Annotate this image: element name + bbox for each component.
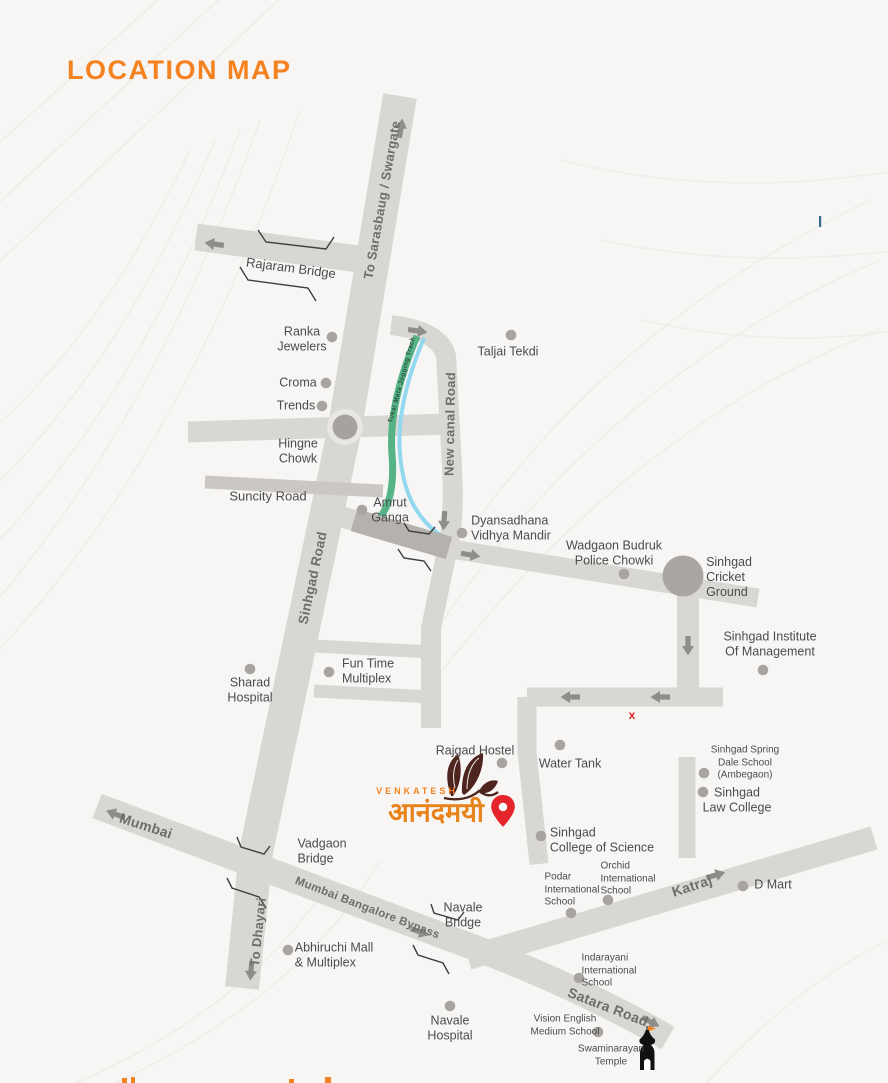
poi-dot [283,945,294,956]
label-fun-time: Fun Time Multiplex [342,656,394,686]
poi-dot [536,831,547,842]
poi-dot [445,1001,456,1012]
poi-dot [357,505,368,516]
poi-dot [758,665,769,676]
poi-dot [324,667,335,678]
logo-project-name: आनंदमयी [388,793,484,830]
label-taljai-tekdi: Taljai Tekdi [478,345,539,360]
cutoff-orange-text [122,1077,331,1083]
label-abhiruchi-mall: Abhiruchi Mall & Multiplex [295,940,374,970]
label-swaminarayan-temple: Swaminarayan Temple [578,1044,644,1069]
poi-dot [245,664,256,675]
label-d-mart: D Mart [754,878,792,893]
poi-dot [738,881,749,892]
poi-dot [497,758,508,769]
roads [97,96,874,1038]
poi-dot [619,569,630,580]
blue-tick-mark [819,216,821,227]
label-hingne-chowk: Hingne Chowk [278,436,318,466]
road-label-suncity: Suncity Road [229,488,306,503]
poi-dot [566,908,577,919]
label-water-tank: Water Tank [539,757,602,772]
label-wadgaon-budruk: Wadgaon Budruk Police Chowki [566,538,662,568]
label-amrut-ganga: Amrut Ganga [371,495,409,525]
label-indarayani-school: Indarayani International School [581,952,636,990]
label-sharad-hospital: Sharad Hospital [227,675,272,705]
cricket-ground-circle [663,556,704,597]
poi-dot [317,401,328,412]
label-dyansadhana: Dyansadhana Vidhya Mandir [471,513,551,543]
label-navale-hospital: Navale Hospital [427,1013,472,1043]
label-college-of-science: Sinhgad College of Science [550,825,654,855]
road-funtime-top [314,646,432,652]
poi-dot [506,330,517,341]
road-label-new-canal: New canal Road [441,372,458,476]
poi-dot [321,378,332,389]
label-trends: Trends [277,399,315,414]
label-vision-english-school: Vision English Medium School [531,1014,600,1039]
label-ranka-jewelers: Ranka Jewelers [277,324,326,354]
poi-dot [699,768,710,779]
road-hingne-cross [188,424,447,432]
road-closed-x-marker: x [629,708,636,722]
label-rajgad-hostel: Rajgad Hostel [436,744,515,759]
poi-dot [327,332,338,343]
location-pin-icon [491,795,515,827]
road-funtime-bottom [314,691,432,697]
label-vadgaon-bridge: Vadgaon Bridge [297,836,346,866]
poi-dot [555,740,566,751]
label-croma: Croma [279,376,317,391]
label-orchid-school: Orchid International School [600,860,655,898]
label-cricket-ground: Sinhgad Cricket Ground [706,555,752,599]
label-podar-school: Podar International School [544,871,599,909]
label-navale-bridge: Navale Bridge [444,900,483,930]
label-law-college: Sinhgad Law College [703,785,772,815]
label-spring-dale: Sinhgad Spring Dale School (Ambegaon) [711,744,779,782]
hingne-roundabout [333,415,358,440]
page-title: LOCATION MAP [67,55,291,86]
label-sinhgad-institute: Sinhgad Institute Of Management [723,629,816,659]
poi-dot [457,528,468,539]
